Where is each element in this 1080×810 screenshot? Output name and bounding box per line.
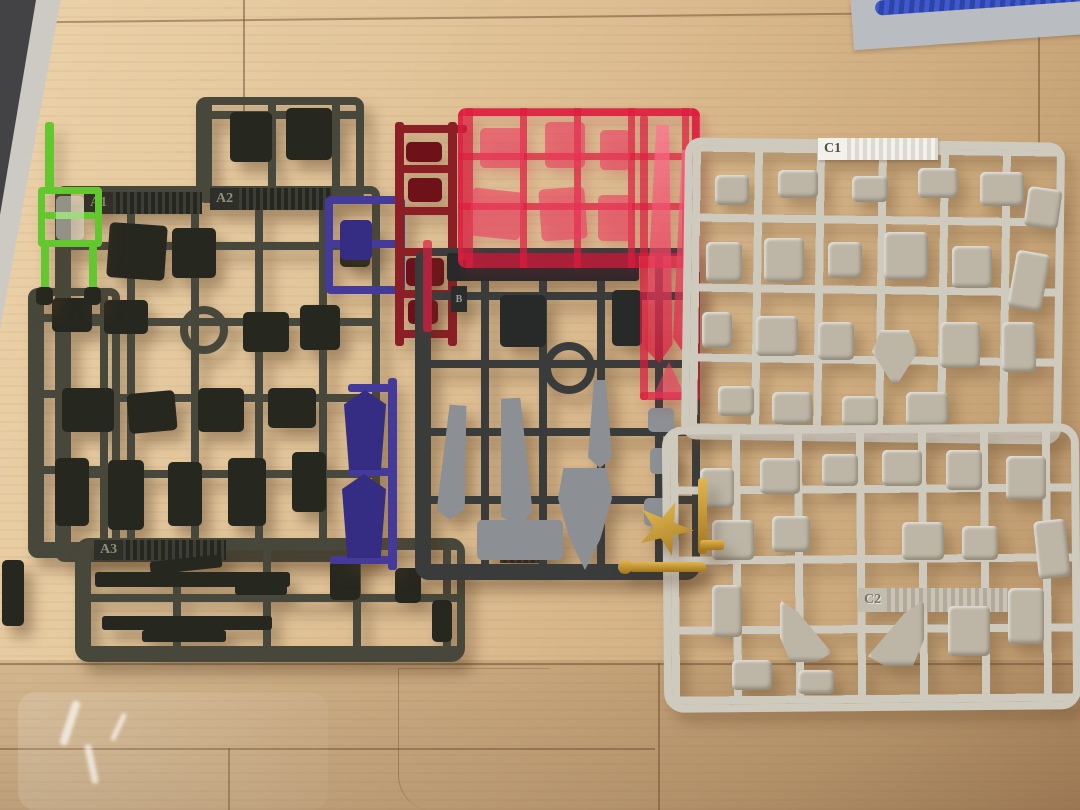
runner-bar — [700, 540, 724, 550]
sprue-gold — [0, 0, 1080, 810]
burst-antenna-part — [628, 491, 703, 565]
runner-bar — [628, 562, 706, 572]
photo-model-kit-sprues: A1 A2 A3 — [0, 0, 1080, 810]
runner-end — [618, 560, 632, 574]
